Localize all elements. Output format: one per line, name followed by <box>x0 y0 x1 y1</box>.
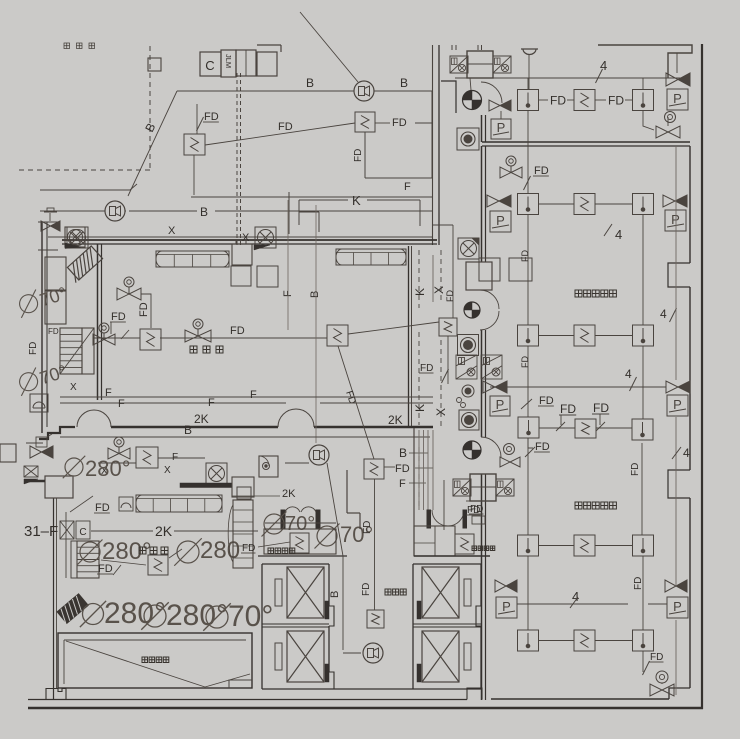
svg-text:X: X <box>434 408 448 416</box>
svg-text:4: 4 <box>660 307 667 321</box>
svg-text:280°: 280° <box>85 456 131 481</box>
svg-text:FD: FD <box>95 502 110 514</box>
svg-text:B: B <box>200 205 208 219</box>
svg-text:FD: FD <box>361 583 372 596</box>
svg-text:C: C <box>205 58 214 73</box>
svg-text:FD: FD <box>445 290 455 302</box>
svg-text:P: P <box>502 599 511 614</box>
svg-text:P: P <box>496 213 505 228</box>
svg-text:K: K <box>352 193 361 208</box>
svg-text:FD: FD <box>28 342 39 355</box>
svg-text:31–F: 31–F <box>24 523 58 540</box>
svg-text:2K: 2K <box>155 523 173 539</box>
svg-text:FD: FD <box>534 165 549 177</box>
svg-text:FD: FD <box>520 356 530 368</box>
svg-text:X: X <box>70 382 77 393</box>
svg-text:FD: FD <box>230 325 245 337</box>
svg-text:FD: FD <box>242 543 255 554</box>
svg-text:F: F <box>399 478 406 490</box>
svg-text:FD: FD <box>392 117 407 129</box>
svg-text:FD: FD <box>608 94 624 108</box>
svg-text:B: B <box>184 423 192 437</box>
svg-text:FD: FD <box>420 363 433 374</box>
svg-text:FD: FD <box>362 521 373 534</box>
svg-text:FD: FD <box>48 327 59 336</box>
svg-text:P: P <box>497 120 506 135</box>
svg-text:P: P <box>673 91 682 106</box>
svg-text:B: B <box>329 591 341 598</box>
svg-text:FD: FD <box>539 395 554 407</box>
svg-text:P: P <box>671 212 680 227</box>
svg-text:F: F <box>105 387 112 399</box>
svg-text:FD: FD <box>353 149 364 162</box>
svg-text:FD: FD <box>520 250 530 262</box>
svg-text:FD: FD <box>593 401 609 415</box>
svg-text:FD: FD <box>550 94 566 108</box>
svg-text:FD: FD <box>633 577 644 590</box>
svg-text:B: B <box>306 76 314 90</box>
svg-text:FD: FD <box>204 111 219 123</box>
svg-text:FD: FD <box>470 504 483 515</box>
svg-text:4: 4 <box>625 367 632 381</box>
svg-text:B: B <box>309 291 321 298</box>
svg-text:P: P <box>673 599 682 614</box>
svg-text:2K: 2K <box>388 413 403 427</box>
svg-text:JLM: JLM <box>224 54 233 68</box>
svg-text:F: F <box>404 181 411 193</box>
svg-text:280: 280 <box>200 537 240 564</box>
svg-text:FD: FD <box>138 302 150 317</box>
svg-text:P: P <box>496 397 505 412</box>
svg-text:C: C <box>79 527 86 538</box>
svg-text:F: F <box>172 452 178 463</box>
svg-text:FD: FD <box>98 563 113 575</box>
svg-text:4: 4 <box>615 227 622 242</box>
svg-text:FD: FD <box>650 652 663 663</box>
svg-text:2K: 2K <box>194 412 209 426</box>
svg-text:4: 4 <box>683 446 690 460</box>
svg-text:F: F <box>208 397 215 409</box>
svg-text:F: F <box>250 389 257 401</box>
svg-text:K: K <box>413 288 427 296</box>
svg-text:FD: FD <box>111 311 126 323</box>
svg-text:FD: FD <box>535 441 550 453</box>
svg-text:P: P <box>673 397 682 412</box>
svg-text:K: K <box>413 404 427 412</box>
svg-text:2K: 2K <box>282 488 296 500</box>
svg-text:FD: FD <box>630 463 641 476</box>
svg-text:FD: FD <box>560 402 576 416</box>
svg-text:FD: FD <box>395 463 410 475</box>
svg-text:X: X <box>168 225 176 237</box>
svg-text:B: B <box>399 446 407 460</box>
svg-text:4: 4 <box>572 589 579 604</box>
svg-text:70°: 70° <box>228 600 273 633</box>
svg-text:B: B <box>400 76 408 90</box>
svg-text:FD: FD <box>278 121 293 133</box>
svg-text:X: X <box>164 465 171 476</box>
svg-text:X: X <box>432 286 446 294</box>
svg-text:70°: 70° <box>285 513 315 535</box>
svg-text:F: F <box>118 398 125 410</box>
